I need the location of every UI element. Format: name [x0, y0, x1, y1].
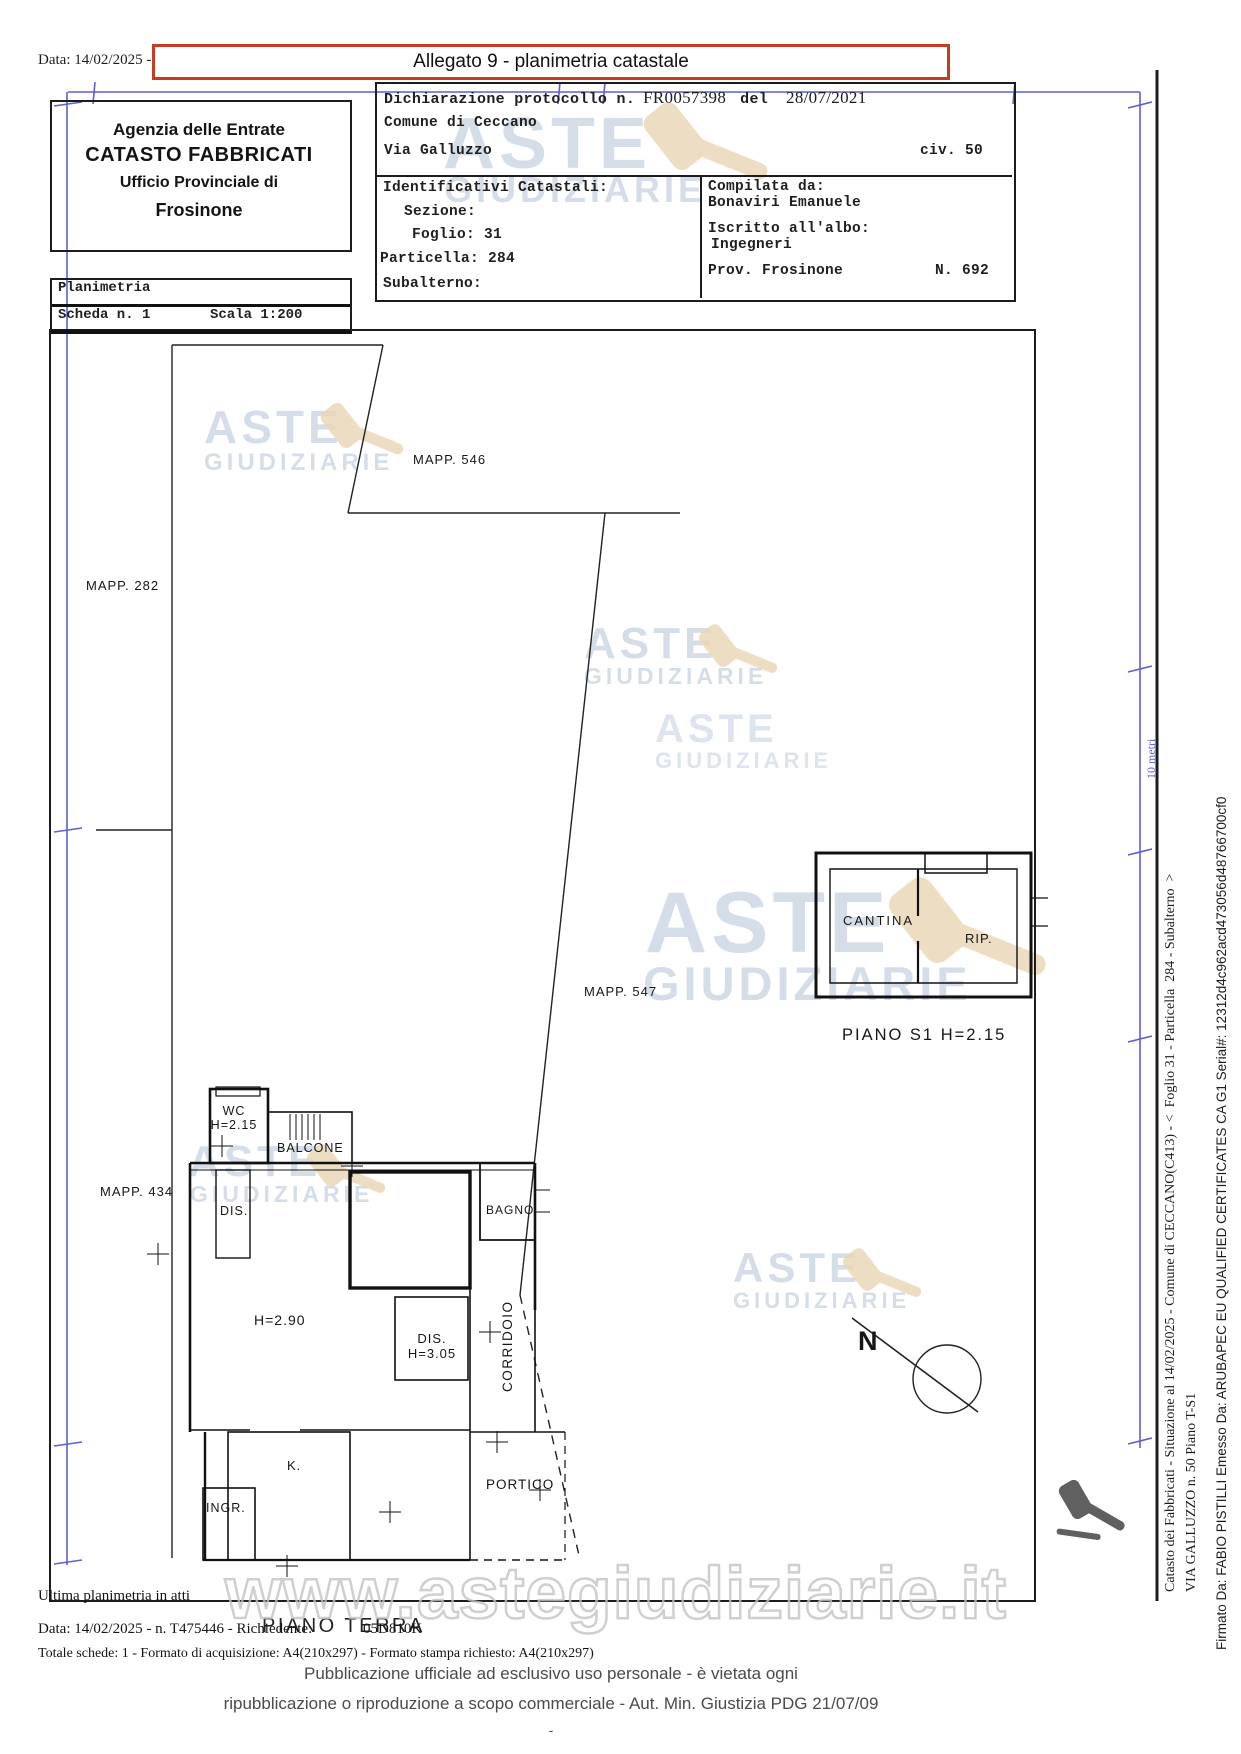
mapp-434-label: MAPP. 434: [100, 1184, 173, 1199]
particella: Particella: 284: [380, 251, 515, 267]
room-corridoio: CORRIDOIO: [500, 1300, 515, 1392]
mapp-282-label: MAPP. 282: [86, 578, 159, 593]
room-balcone: BALCONE: [277, 1141, 344, 1155]
astegiudiziarie-url-watermark: www.astegiudiziarie.it: [225, 1552, 1007, 1635]
north-label: N: [858, 1326, 879, 1357]
gavel-stamp-icon: [1050, 1475, 1131, 1543]
room-rip: RIP.: [965, 931, 993, 946]
room-h290: H=2.90: [254, 1312, 306, 1328]
foglio: Foglio: 31: [412, 227, 502, 243]
identificativi-title: Identificativi Catastali:: [383, 180, 608, 196]
sezione: Sezione:: [404, 204, 476, 220]
pubblicazione-line2: ripubblicazione o riproduzione a scopo c…: [0, 1694, 1102, 1714]
agency-line2: CATASTO FABBRICATI: [50, 144, 348, 167]
del-label: del: [740, 91, 768, 108]
allegato-title: Allegato 9 - planimetria catastale: [413, 51, 689, 73]
info-table-divider-h: [375, 175, 1012, 177]
cadastral-document-page: ASTE GIUDIZIARIE ASTE GIUDIZIARIE ASTE G…: [0, 0, 1241, 1754]
piano-s1-label: PIANO S1 H=2.15: [842, 1026, 1006, 1045]
subalterno: Subalterno:: [383, 276, 482, 292]
room-k: K.: [287, 1458, 301, 1473]
room-bagno: BAGNO: [486, 1203, 534, 1217]
room-dis2: DIS.H=3.05: [390, 1331, 474, 1361]
compilata-nome: Bonaviri Emanuele: [708, 195, 861, 211]
albo-value: Ingegneri: [711, 237, 792, 253]
room-cantina: CANTINA: [843, 913, 914, 928]
agency-line4: Frosinone: [50, 200, 348, 221]
dichiarazione-label: Dichiarazione protocollo n.: [384, 91, 635, 108]
agency-line3: Ufficio Provinciale di: [50, 174, 348, 192]
footer-dash: -: [0, 1722, 1102, 1738]
pubblicazione-line1: Pubblicazione ufficiale ad esclusivo uso…: [0, 1664, 1102, 1684]
prov-label: Prov. Frosinone: [708, 263, 843, 279]
compilata-label: Compilata da:: [708, 179, 825, 195]
allegato-title-box: Allegato 9 - planimetria catastale: [152, 44, 950, 80]
scala-label: Scala 1:200: [210, 307, 302, 323]
room-dis1: DIS.: [220, 1204, 248, 1218]
scheda-label: Scheda n. 1: [58, 307, 150, 323]
scale-note-10-metri: 10 metri: [1144, 739, 1159, 779]
room-wc: WCH=2.15: [198, 1104, 270, 1132]
comune-line: Comune di Ceccano: [384, 115, 537, 131]
room-ingr: INGR.: [206, 1501, 246, 1515]
info-table-divider-v: [700, 175, 702, 298]
ultima-planimetria-note: Ultima planimetria in atti: [38, 1588, 190, 1605]
sidebar-signature-line: Firmato Da: FABIO PISTILLI Emesso Da: AR…: [1214, 797, 1229, 1650]
sidebar-address-line: VIA GALLUZZO n. 50 Piano T-S1: [1184, 1393, 1200, 1592]
footer-totale-line: Totale schede: 1 - Formato di acquisizio…: [38, 1646, 594, 1662]
protocollo-date: 28/07/2021: [786, 88, 866, 107]
page-date: Data: 14/02/2025 -: [38, 52, 151, 69]
albo-label: Iscritto all'albo:: [708, 221, 870, 237]
mapp-547-label: MAPP. 547: [584, 984, 657, 999]
sidebar-catasto-line: Catasto dei Fabbricati - Situazione al 1…: [1163, 874, 1179, 1592]
planimetria-label: Planimetria: [58, 280, 150, 296]
agency-line1: Agenzia delle Entrate: [50, 120, 348, 140]
dichiarazione-line: Dichiarazione protocollo n.FR0057398del2…: [384, 88, 867, 108]
via-line: Via Galluzzo: [384, 143, 492, 159]
civico: civ. 50: [920, 143, 983, 159]
protocollo-number: FR0057398: [643, 88, 726, 107]
room-portico: PORTICO: [486, 1477, 554, 1492]
albo-numero: N. 692: [935, 263, 989, 279]
mapp-546-label: MAPP. 546: [413, 452, 486, 467]
parcel-boundaries: [96, 345, 680, 1560]
